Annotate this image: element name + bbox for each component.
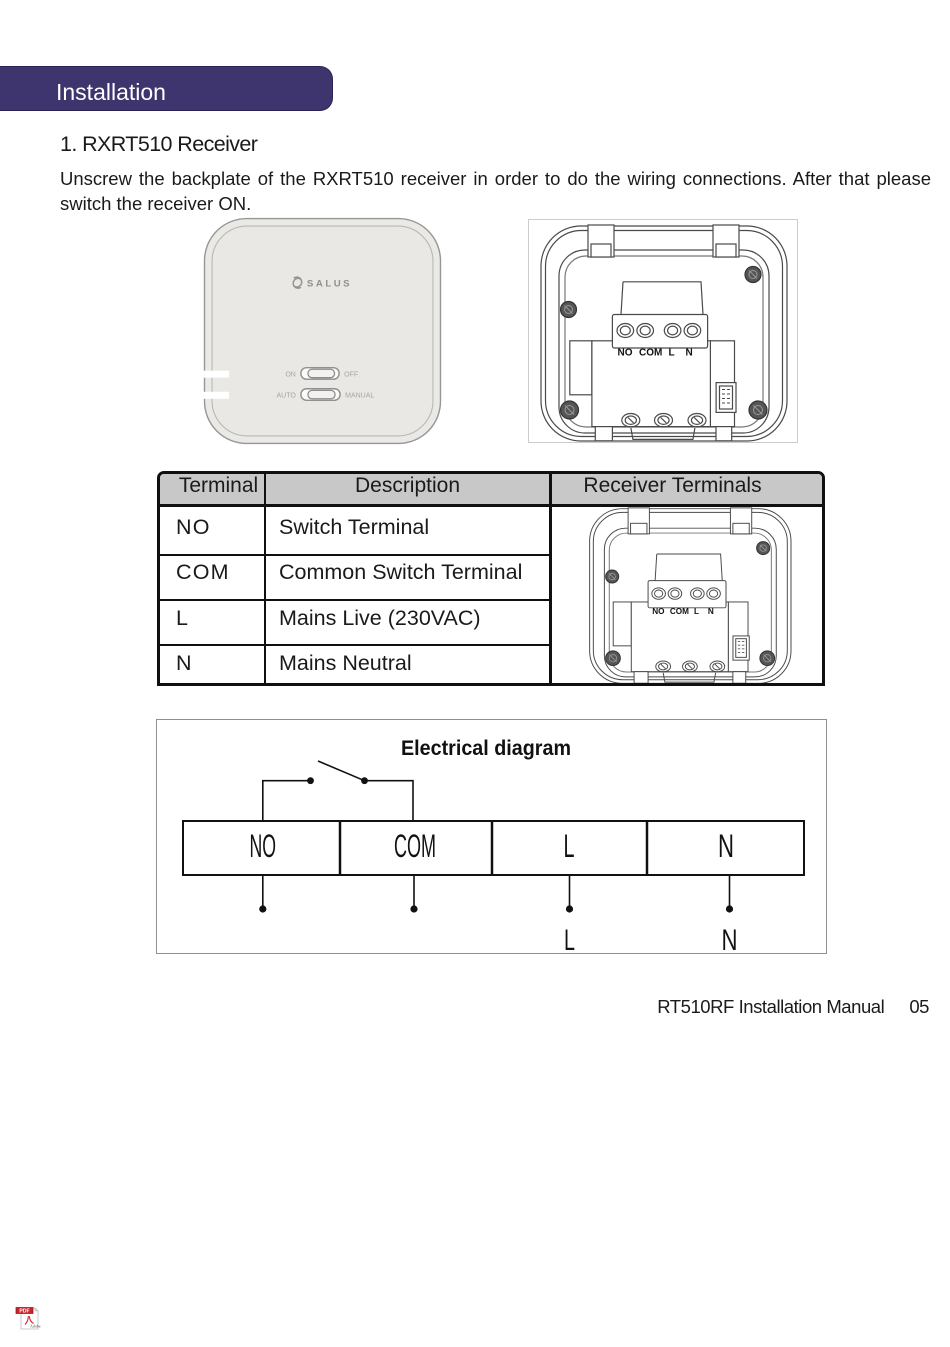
svg-text:MANUAL: MANUAL	[345, 392, 374, 399]
svg-text:N: N	[718, 828, 734, 864]
svg-text:ON: ON	[285, 371, 296, 378]
svg-text:NO: NO	[250, 828, 277, 864]
svg-text:SALUS: SALUS	[306, 278, 351, 289]
svg-text:L: L	[564, 828, 575, 864]
svg-text:PDF: PDF	[19, 1309, 29, 1315]
svg-text:Electrical diagram: Electrical diagram	[401, 737, 571, 760]
svg-text:AUTO: AUTO	[276, 392, 296, 399]
svg-text:L: L	[564, 924, 575, 954]
svg-text:Adobe: Adobe	[30, 1324, 41, 1329]
svg-text:N: N	[722, 924, 738, 954]
svg-text:COM: COM	[394, 828, 436, 864]
svg-text:OFF: OFF	[344, 371, 358, 378]
